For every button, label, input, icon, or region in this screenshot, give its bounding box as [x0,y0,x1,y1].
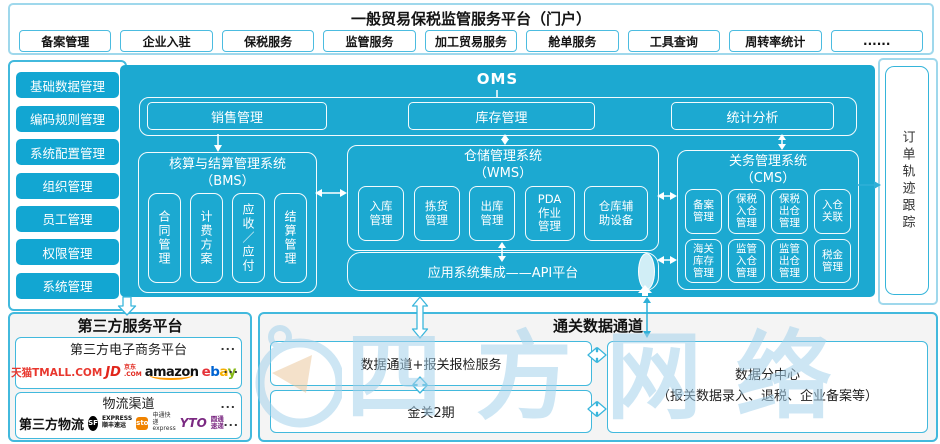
tab-enterprise-entry[interactable]: 企业入驻 [120,30,212,52]
bms-item-receivable-payable: 应收／应付 [232,193,265,283]
logistics-logos: 第三方物流 SF EXPRESS 顺丰速运 sto 申通快递 express Y… [19,411,228,435]
wms-items: 入库 管理 拣货 管理 出库 管理 PDA 作业 管理 仓库辅 助设备 [358,186,648,241]
tab-manifest-service[interactable]: 舱单服务 [526,30,618,52]
portal-header: 一般贸易保税监管服务平台（门户） 备案管理 企业入驻 保税服务 监管服务 加工贸… [8,3,934,55]
cms-item-bonded-inbound: 保税 入仓 管理 [728,189,765,234]
tab-processing-trade-service[interactable]: 加工贸易服务 [425,30,517,52]
wms-item-outbound: 出库 管理 [469,186,515,241]
cms-item-warehouse-link: 入仓 关联 [814,189,851,234]
bms-title: 核算与结算管理系统 （BMS） [139,157,316,191]
sto-express-text: 申通快递 express [152,413,175,433]
sidebar-item-system[interactable]: 系统管理 [16,273,119,299]
wms-subsystem: 仓储管理系统 （WMS） 入库 管理 拣货 管理 出库 管理 PDA 作业 管理… [347,145,659,251]
cms-item-bonded-outbound: 保税 出仓 管理 [771,189,808,234]
bms-item-settlement: 结算管理 [274,193,307,283]
cms-item-tax: 税金 管理 [814,239,851,284]
module-inventory-management: 库存管理 [408,102,595,130]
jd-logo-text: 京东 .COM [124,365,142,378]
sidebar-item-permission[interactable]: 权限管理 [16,239,119,265]
bms-subsystem: 核算与结算管理系统 （BMS） 合同管理 计费方案 应收／应付 结算管理 [138,152,317,293]
tab-bonded-service[interactable]: 保税服务 [222,30,314,52]
tab-more[interactable]: ...... [831,30,923,52]
sidebar-item-basic-data[interactable]: 基础数据管理 [16,72,119,98]
portal-architecture-diagram: 一般贸易保税监管服务平台（门户） 备案管理 企业入驻 保税服务 监管服务 加工贸… [0,0,940,444]
order-tracking-panel: 订单轨迹跟踪 [878,58,938,305]
tab-tool-query[interactable]: 工具查询 [628,30,720,52]
bms-item-billing-plan: 计费方案 [190,193,223,283]
logistics-more-dots-top: ... [220,398,236,411]
wms-item-inbound: 入库 管理 [358,186,404,241]
ecommerce-more-dots-bottom: ... [223,363,239,376]
order-tracking-label: 订单轨迹跟踪 [885,66,929,295]
bms-items: 合同管理 计费方案 应收／应付 结算管理 [148,193,307,283]
data-sub-center-box: 数据分中心 （报关数据录入、退税、企业备案等） [607,341,928,433]
sidebar-item-coding-rules[interactable]: 编码规则管理 [16,106,119,132]
sf-express-text: EXPRESS 顺丰速运 [102,416,132,429]
portal-title: 一般贸易保税监管服务平台（门户） [10,8,932,29]
cms-item-filing: 备案 管理 [685,189,722,234]
ecommerce-label: 第三方电子商务平台 [16,339,241,358]
yto-express-logo: YTO [180,416,207,430]
sidebar: 基础数据管理 编码规则管理 系统配置管理 组织管理 员工管理 权限管理 系统管理 [8,60,127,311]
tab-filing-management[interactable]: 备案管理 [19,30,111,52]
cms-subsystem: 关务管理系统 （CMS） 备案 管理 保税 入仓 管理 保税 出仓 管理 入仓 … [677,150,859,290]
logistics-channel-box: 物流渠道 ... 第三方物流 SF EXPRESS 顺丰速运 sto 申通快递 … [15,392,242,439]
tab-supervision-service[interactable]: 监管服务 [323,30,415,52]
sidebar-item-system-config[interactable]: 系统配置管理 [16,139,119,165]
bms-item-contract: 合同管理 [148,193,181,283]
customs-title: 通关数据通道 [260,315,936,336]
cms-item-supervised-outbound: 监管 出仓 管理 [771,239,808,284]
tmall-logo: 天猫TMALL.COM [11,365,102,380]
logistics-more-dots-bottom: ... [223,416,239,429]
ecommerce-more-dots-top: ... [220,340,236,353]
wms-item-picking: 拣货 管理 [414,186,460,241]
third-party-platform-panel: 第三方服务平台 第三方电子商务平台 ... 天猫TMALL.COM JD 京东 … [8,312,252,442]
data-channel-box: 数据通道+报关报检服务 [270,341,592,386]
wms-item-warehouse-aux-equipment: 仓库辅 助设备 [584,186,648,241]
wms-title: 仓储管理系统 （WMS） [348,149,658,183]
sto-express-logo: sto [136,417,148,430]
third-party-logistics-label: 第三方物流 [19,414,84,433]
amazon-logo: amazon [145,365,199,380]
logistics-label: 物流渠道 [16,393,241,412]
oms-title: OMS [120,70,875,88]
cylinder-end-cap [638,253,655,290]
customs-data-channel-panel: 通关数据通道 数据通道+报关报检服务 金关2期 数据分中心 （报关数据录入、退税… [258,312,938,442]
api-platform-bar: 应用系统集成——API平台 [347,252,659,291]
sf-express-logo: SF [88,416,98,431]
sidebar-item-employee[interactable]: 员工管理 [16,206,119,232]
cms-item-supervised-inbound: 监管 入仓 管理 [728,239,765,284]
jd-logo: JD [105,365,121,380]
module-sales-management: 销售管理 [147,102,327,130]
ecommerce-platform-box: 第三方电子商务平台 ... 天猫TMALL.COM JD 京东 .COM ama… [15,337,242,389]
sidebar-item-organization[interactable]: 组织管理 [16,173,119,199]
ecommerce-logos: 天猫TMALL.COM JD 京东 .COM amazon ebay [19,359,228,385]
portal-tab-bar: 备案管理 企业入驻 保税服务 监管服务 加工贸易服务 舱单服务 工具查询 周转率… [19,30,923,52]
golden-gate-phase2-box: 金关2期 [270,390,592,433]
module-statistics-analysis: 统计分析 [671,102,834,130]
third-party-title: 第三方服务平台 [10,315,250,336]
cms-title: 关务管理系统 （CMS） [678,154,858,188]
cms-items: 备案 管理 保税 入仓 管理 保税 出仓 管理 入仓 关联 海关 库存 管理 监… [685,189,851,283]
oms-system-block: OMS 销售管理 库存管理 统计分析 核算与结算管理系统 （BMS） 合同管理 … [120,65,875,297]
tab-turnover-statistics[interactable]: 周转率统计 [729,30,821,52]
wms-item-pda-operation: PDA 作业 管理 [525,186,575,241]
cms-item-customs-inventory: 海关 库存 管理 [685,239,722,284]
